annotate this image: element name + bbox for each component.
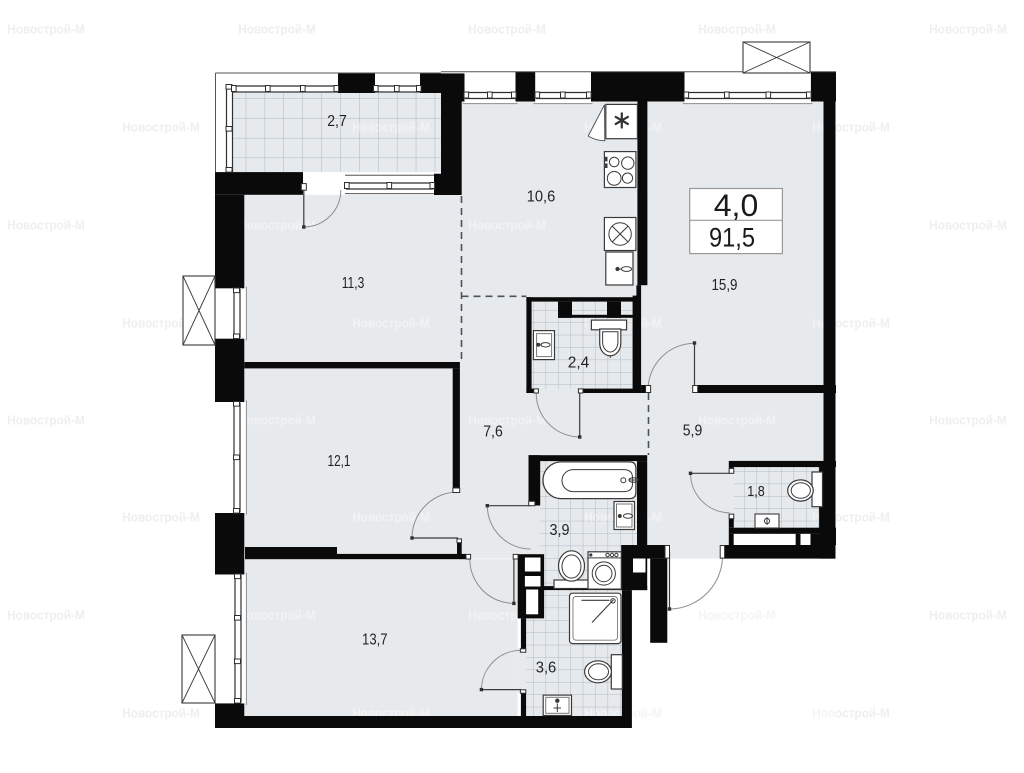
- svg-text:Новострой-М: Новострой-М: [238, 414, 316, 428]
- svg-text:Новострой-М: Новострой-М: [929, 609, 1007, 623]
- svg-text:91,5: 91,5: [709, 223, 755, 253]
- svg-text:Новострой-М: Новострой-М: [929, 219, 1007, 233]
- svg-text:2,4: 2,4: [568, 354, 590, 371]
- svg-text:Новострой-М: Новострой-М: [929, 414, 1007, 428]
- svg-text:Новострой-М: Новострой-М: [929, 23, 1007, 37]
- svg-text:Новострой-М: Новострой-М: [468, 23, 546, 37]
- svg-text:Новострой-М: Новострой-М: [7, 219, 85, 233]
- svg-text:Новострой-М: Новострой-М: [122, 511, 200, 525]
- svg-text:7,6: 7,6: [483, 424, 503, 441]
- svg-text:10,6: 10,6: [527, 189, 556, 206]
- svg-text:Новострой-М: Новострой-М: [238, 23, 316, 37]
- svg-text:4,0: 4,0: [714, 187, 759, 223]
- svg-text:5,9: 5,9: [683, 423, 703, 440]
- svg-text:Новострой-М: Новострой-М: [698, 414, 776, 428]
- svg-text:Новострой-М: Новострой-М: [468, 414, 546, 428]
- svg-text:Новострой-М: Новострой-М: [352, 511, 430, 525]
- svg-text:Новострой-М: Новострой-М: [698, 609, 776, 623]
- svg-text:15,9: 15,9: [712, 277, 738, 294]
- svg-text:Новострой-М: Новострой-М: [122, 121, 200, 135]
- svg-text:Новострой-М: Новострой-М: [7, 609, 85, 623]
- svg-text:11,3: 11,3: [342, 275, 365, 292]
- svg-text:1,8: 1,8: [747, 483, 765, 500]
- svg-text:3,9: 3,9: [550, 522, 570, 539]
- svg-text:Новострой-М: Новострой-М: [468, 219, 546, 233]
- svg-text:12,1: 12,1: [328, 453, 351, 470]
- svg-text:2,7: 2,7: [327, 113, 347, 130]
- svg-text:13,7: 13,7: [362, 632, 388, 649]
- svg-text:Новострой-М: Новострой-М: [238, 609, 316, 623]
- svg-text:Новострой-М: Новострой-М: [122, 707, 200, 721]
- svg-text:Новострой-М: Новострой-М: [7, 414, 85, 428]
- svg-text:3,6: 3,6: [536, 660, 557, 677]
- svg-text:Новострой-М: Новострой-М: [352, 317, 430, 331]
- svg-text:Новострой-М: Новострой-М: [698, 23, 776, 37]
- svg-text:Новострой-М: Новострой-М: [352, 121, 430, 135]
- svg-text:Новострой-М: Новострой-М: [7, 23, 85, 37]
